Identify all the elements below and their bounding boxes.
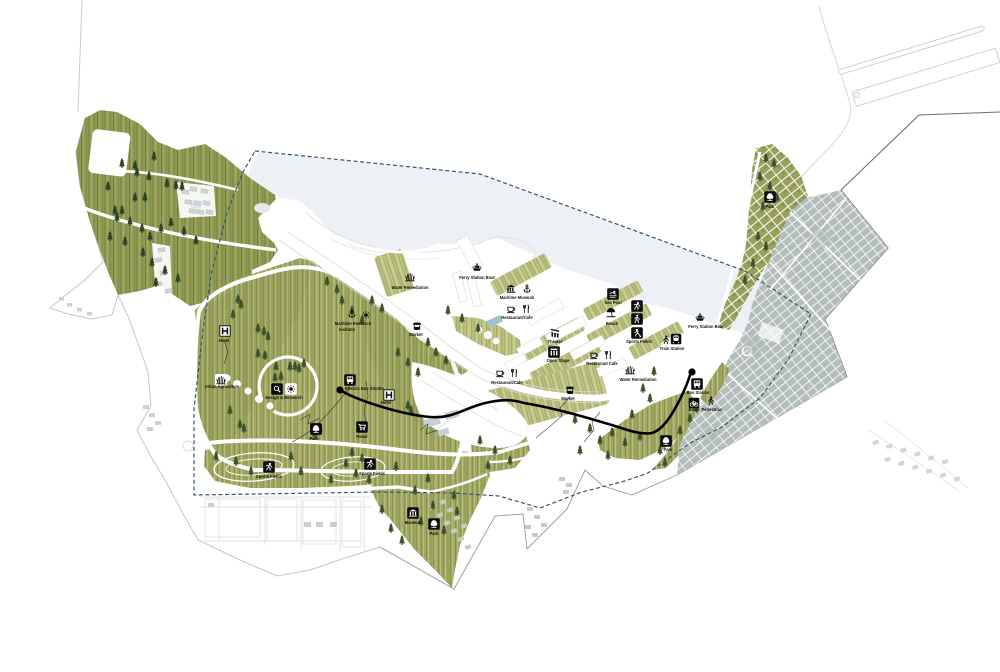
svg-text:Museum: Museum	[405, 520, 422, 525]
svg-text:Water Remediation: Water Remediation	[620, 377, 657, 382]
svg-text:Hotel: Hotel	[219, 338, 229, 343]
svg-text:Sports Fields: Sports Fields	[359, 471, 386, 476]
svg-text:Design & Research: Design & Research	[265, 395, 303, 400]
svg-text:Restaurant/Cafe: Restaurant/Cafe	[491, 380, 523, 385]
svg-text:Electric Bus Shuttle: Electric Bus Shuttle	[345, 386, 384, 391]
svg-text:Train Station: Train Station	[660, 346, 685, 351]
svg-text:Retail: Retail	[356, 434, 367, 439]
svg-text:Maritime Research: Maritime Research	[335, 321, 372, 326]
svg-text:Maritime Museum: Maritime Museum	[500, 295, 535, 300]
svg-text:Sports Fields: Sports Fields	[256, 474, 283, 479]
svg-text:Sea Pool: Sea Pool	[604, 300, 621, 305]
svg-text:Theater: Theater	[548, 339, 563, 344]
svg-text:Beach: Beach	[606, 321, 619, 326]
svg-text:Ferry Station Boat: Ferry Station Boat	[688, 324, 724, 329]
svg-text:Bus Station: Bus Station	[687, 390, 710, 395]
svg-text:Park: Park	[664, 447, 674, 452]
svg-text:Market: Market	[409, 332, 423, 337]
svg-text:Park: Park	[430, 531, 440, 536]
svg-text:Park: Park	[310, 436, 320, 441]
svg-text:Hotel: Hotel	[381, 400, 391, 405]
svg-text:Water Remediation: Water Remediation	[392, 285, 429, 290]
svg-text:Pedestrian: Pedestrian	[702, 407, 723, 412]
svg-text:Ferry Station Boat: Ferry Station Boat	[459, 275, 495, 280]
svg-text:Restaurant/Cafe: Restaurant/Cafe	[501, 315, 533, 320]
svg-text:Restaurant Cafe: Restaurant Cafe	[586, 361, 618, 366]
svg-text:Bike: Bike	[689, 407, 698, 412]
svg-text:Sports Fields: Sports Fields	[626, 339, 653, 344]
svg-text:Open Stage: Open Stage	[547, 358, 570, 363]
svg-text:Institute: Institute	[339, 327, 356, 332]
svg-text:Park: Park	[766, 204, 776, 209]
svg-text:Urban Agriculture: Urban Agriculture	[205, 384, 240, 389]
svg-text:Market: Market	[561, 396, 575, 401]
